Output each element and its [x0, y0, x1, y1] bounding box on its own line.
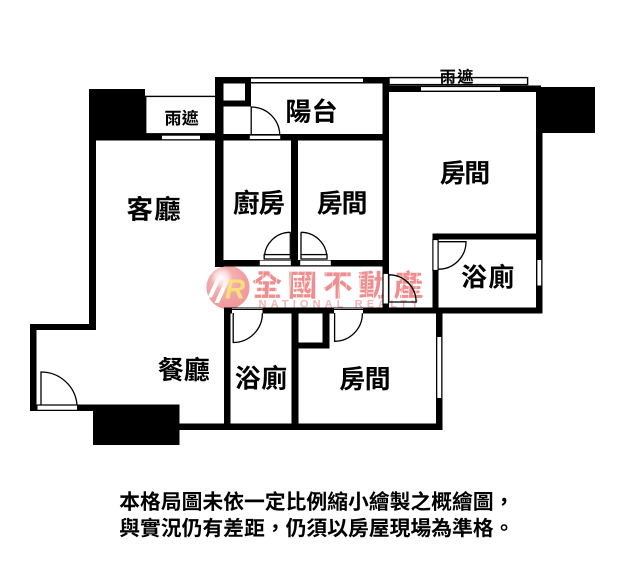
- svg-text:R: R: [225, 274, 246, 305]
